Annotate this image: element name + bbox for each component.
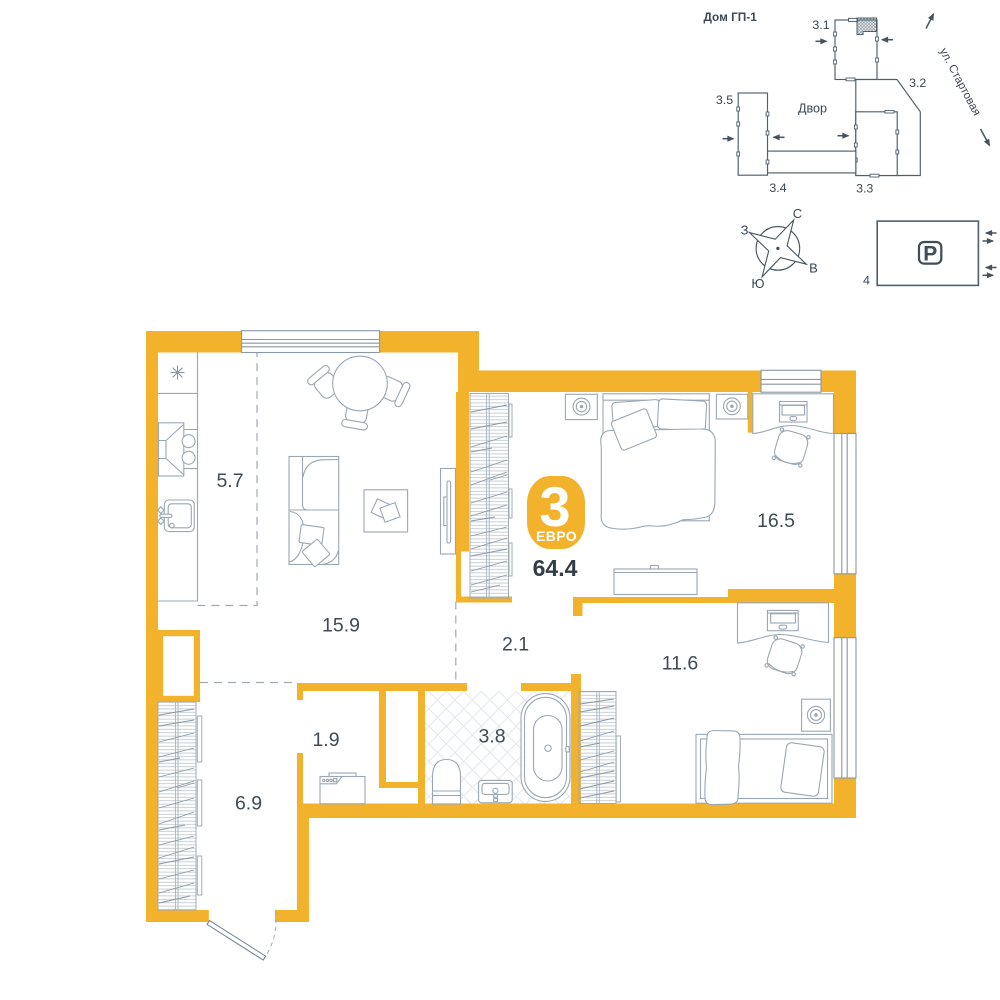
svg-text:P: P bbox=[923, 243, 937, 266]
svg-text:11.6: 11.6 bbox=[662, 652, 699, 674]
svg-text:64.4: 64.4 bbox=[533, 555, 578, 581]
svg-text:ЕВРО: ЕВРО bbox=[536, 528, 577, 544]
svg-text:Ю: Ю bbox=[751, 276, 764, 291]
svg-text:З: З bbox=[741, 223, 749, 238]
svg-text:3.5: 3.5 bbox=[716, 93, 733, 107]
svg-text:3.8: 3.8 bbox=[478, 725, 505, 747]
svg-text:Двор: Двор bbox=[798, 102, 827, 116]
svg-text:3.4: 3.4 bbox=[769, 181, 786, 195]
svg-text:5.7: 5.7 bbox=[216, 470, 243, 492]
svg-text:4: 4 bbox=[863, 274, 870, 288]
svg-text:15.9: 15.9 bbox=[322, 614, 360, 636]
svg-text:2.1: 2.1 bbox=[502, 633, 529, 655]
svg-text:С: С bbox=[793, 206, 802, 221]
svg-text:3.1: 3.1 bbox=[812, 18, 829, 32]
svg-text:В: В bbox=[809, 261, 818, 276]
svg-text:3.3: 3.3 bbox=[856, 182, 873, 196]
svg-text:ул. Стартовая: ул. Стартовая bbox=[937, 46, 983, 118]
svg-text:16.5: 16.5 bbox=[757, 510, 795, 532]
svg-text:1.9: 1.9 bbox=[312, 729, 339, 751]
svg-text:6.9: 6.9 bbox=[235, 792, 262, 814]
svg-text:3.2: 3.2 bbox=[909, 76, 926, 90]
svg-text:Дом ГП-1: Дом ГП-1 bbox=[704, 10, 758, 24]
